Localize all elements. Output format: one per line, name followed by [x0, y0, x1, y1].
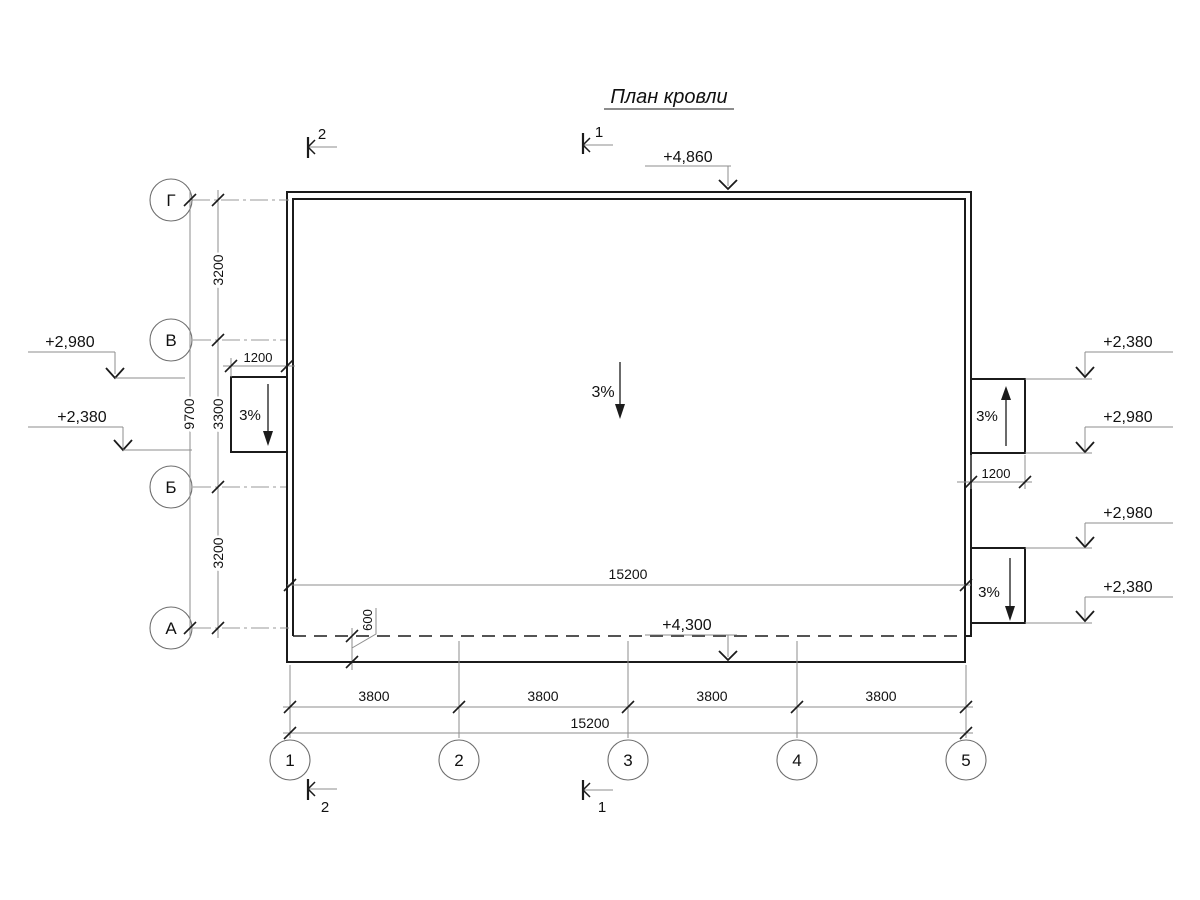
left-canopy-slope-arrowhead-icon	[263, 431, 273, 446]
right-lower-canopy-slope-label: 3%	[978, 584, 1000, 601]
elevation-right-3-value: +2,980	[1103, 505, 1152, 522]
main-roof-slope: 3%	[591, 362, 625, 419]
elevation-bottom-value: +4,300	[662, 617, 711, 634]
right-upper-canopy-slope-arrowhead-icon	[1001, 386, 1011, 400]
section-label: 2	[321, 799, 329, 816]
section-label: 2	[318, 126, 326, 143]
left-dimensions: 3200 3300 3200 9700	[181, 190, 226, 638]
dim-bottom-segment-4: 3800	[865, 688, 896, 704]
elevation-right-4-value: +2,380	[1103, 579, 1152, 596]
dim-bottom-segment-2: 3800	[527, 688, 558, 704]
left-canopy-dimension: 1200	[223, 350, 295, 377]
axis-label-b: Б	[165, 478, 176, 497]
axis-label-a: А	[165, 619, 177, 638]
left-canopy-slope-label: 3%	[239, 407, 261, 424]
elevation-left-lower-value: +2,380	[57, 409, 106, 426]
axis-label-1: 1	[285, 751, 294, 770]
axis-label-v: В	[165, 331, 176, 350]
section-label: 1	[595, 124, 603, 141]
section-mark-1-bottom: 1	[583, 780, 613, 816]
main-slope-label: 3%	[591, 384, 614, 401]
right-lower-canopy-slope-arrowhead-icon	[1005, 606, 1015, 621]
roof-outer-edge	[287, 192, 971, 662]
roof-inner-width-dimension: 15200	[284, 566, 972, 591]
dim-left-segment-3: 3200	[210, 537, 226, 568]
dim-left-segment-1: 3200	[210, 254, 226, 285]
axis-label-5: 5	[961, 751, 970, 770]
dim-left-segment-2: 3300	[210, 398, 226, 429]
elevation-left-upper-value: +2,980	[45, 334, 94, 351]
page-title: План кровли	[610, 86, 727, 108]
elevation-bottom: +4,300	[645, 617, 737, 660]
elevation-right-4: +2,380	[1025, 579, 1173, 623]
axis-label-3: 3	[623, 751, 632, 770]
dim-bottom-segment-3: 3800	[696, 688, 727, 704]
elevation-top: +4,860	[645, 149, 737, 189]
elevation-right-2-value: +2,980	[1103, 409, 1152, 426]
section-mark-2-bottom: 2	[308, 779, 337, 816]
right-canopy-dimension: 1200	[957, 455, 1032, 489]
section-mark-2-top: 2	[308, 126, 337, 158]
section-label: 1	[598, 799, 606, 816]
elevation-right-2: +2,980	[1025, 409, 1173, 453]
elevation-right-1: +2,380	[1025, 334, 1173, 379]
right-lower-canopy: 3%	[971, 548, 1025, 623]
elevation-top-value: +4,860	[663, 149, 712, 166]
drawing-canvas: План кровли 3% 3% 3% 3%	[0, 0, 1200, 900]
dim-left-canopy: 1200	[244, 350, 273, 365]
section-mark-1-top: 1	[583, 124, 613, 154]
eave-offset-dimension: 600	[346, 608, 376, 670]
dim-bottom-total: 15200	[571, 715, 610, 731]
dim-bottom-segment-1: 3800	[358, 688, 389, 704]
dim-right-canopy: 1200	[982, 466, 1011, 481]
main-slope-arrowhead-icon	[615, 404, 625, 419]
dim-roof-inner-width: 15200	[609, 566, 648, 582]
roof-plan-drawing: План кровли 3% 3% 3% 3%	[0, 0, 1200, 900]
left-canopy: 3%	[231, 377, 287, 452]
elevation-left-upper: +2,980	[28, 334, 185, 378]
drawing-title: План кровли	[604, 86, 734, 109]
elevation-right-1-value: +2,380	[1103, 334, 1152, 351]
axis-label-2: 2	[454, 751, 463, 770]
elevation-left-lower: +2,380	[28, 409, 192, 450]
right-upper-canopy-slope-label: 3%	[976, 408, 998, 425]
roof-outline	[287, 192, 971, 662]
elevation-right-3: +2,980	[1025, 505, 1173, 548]
axis-label-g: Г	[166, 191, 175, 210]
dim-eave-offset: 600	[360, 609, 375, 631]
dim-left-total: 9700	[181, 398, 197, 429]
axis-label-4: 4	[792, 751, 801, 770]
right-upper-canopy: 3%	[971, 379, 1025, 453]
